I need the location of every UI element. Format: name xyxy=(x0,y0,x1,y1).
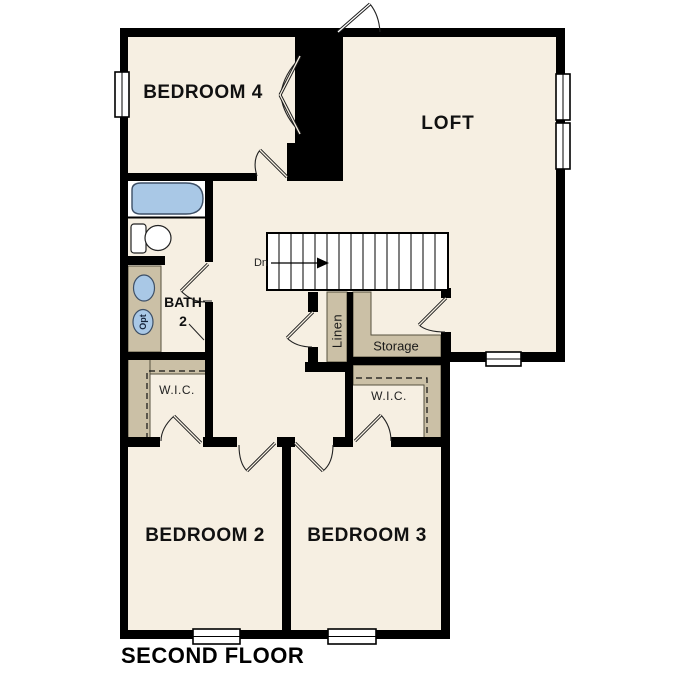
bath2-label: BATH 2 xyxy=(164,293,202,331)
floorplan-second-floor: BEDROOM 4 LOFT BATH 2 W.I.C. W.I.C. Line… xyxy=(0,0,687,687)
wall-bedroom4-south xyxy=(120,173,257,181)
wall-wic-left-north xyxy=(120,352,213,360)
wall-east-lower xyxy=(441,362,450,639)
arc-loft-top-door xyxy=(370,4,380,32)
wall-bath-east-upper xyxy=(205,176,213,262)
wall-bedroom-divider xyxy=(282,437,291,639)
bedroom2-label: BEDROOM 2 xyxy=(145,525,265,547)
wall-bath-east-lower xyxy=(205,302,213,447)
linen-label: Linen xyxy=(330,314,345,348)
room-wic-left xyxy=(128,360,205,437)
stairs-dn-label: Dn xyxy=(254,257,268,269)
wall-closet-column xyxy=(295,28,343,181)
optional-sink-label: Opt xyxy=(138,314,148,330)
loft-label: LOFT xyxy=(421,113,475,135)
bath2-label-line2: 2 xyxy=(164,312,202,331)
wall-bedrooms-north-2 xyxy=(203,437,237,447)
wall-west xyxy=(120,28,128,639)
wic-right-label: W.I.C. xyxy=(371,389,407,403)
plan-title: SECOND FLOOR xyxy=(121,643,304,669)
wall-storage-south xyxy=(347,357,449,365)
wall-bedrooms-north-5 xyxy=(391,437,449,447)
bedroom3-label: BEDROOM 3 xyxy=(307,525,427,547)
room-bedroom-4 xyxy=(128,37,295,173)
bath2-label-line1: BATH xyxy=(164,293,202,312)
bedroom4-label: BEDROOM 4 xyxy=(143,82,263,104)
wall-bedrooms-north-1 xyxy=(120,437,160,447)
wic-left-label: W.I.C. xyxy=(159,383,195,397)
storage-label: Storage xyxy=(373,339,419,354)
wall-wic-right-west xyxy=(345,365,353,447)
